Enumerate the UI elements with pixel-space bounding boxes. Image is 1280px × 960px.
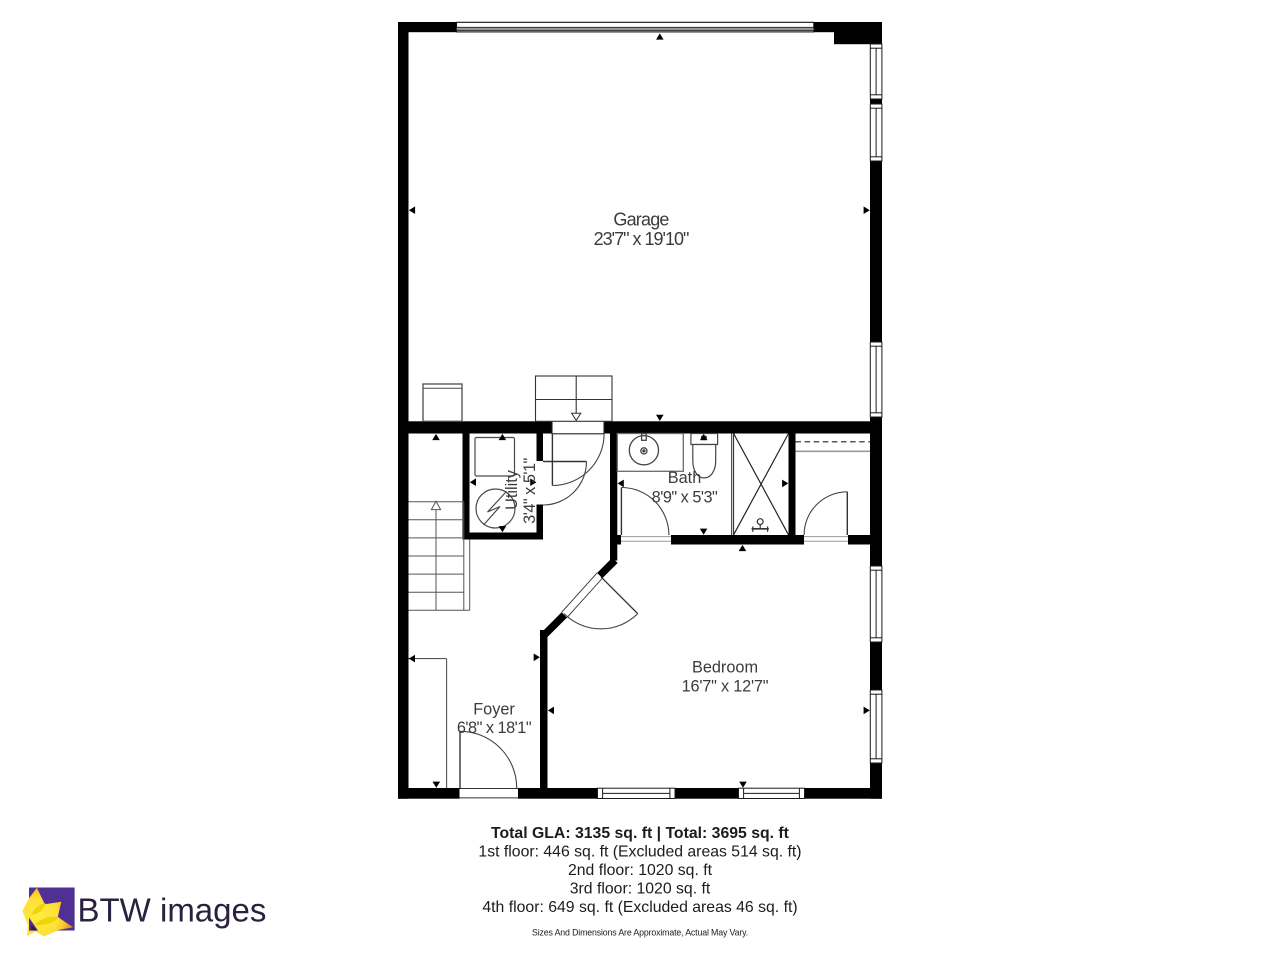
svg-text:3'4" x 5'1": 3'4" x 5'1" xyxy=(521,457,539,523)
svg-text:Bath: Bath xyxy=(668,469,702,487)
svg-text:8'9" x 5'3": 8'9" x 5'3" xyxy=(652,488,718,506)
svg-text:1st floor: 446 sq. ft (Exclude: 1st floor: 446 sq. ft (Excluded areas 51… xyxy=(478,843,801,860)
svg-text:23'7" x 19'10": 23'7" x 19'10" xyxy=(594,229,689,249)
svg-text:Utility: Utility xyxy=(503,469,521,510)
svg-text:3rd floor: 1020 sq. ft: 3rd floor: 1020 sq. ft xyxy=(570,881,711,898)
svg-text:Foyer: Foyer xyxy=(473,701,515,719)
svg-text:BTW images: BTW images xyxy=(78,892,267,929)
svg-text:6'8" x 18'1": 6'8" x 18'1" xyxy=(457,719,532,737)
svg-text:Bedroom: Bedroom xyxy=(692,659,758,677)
svg-text:Garage: Garage xyxy=(613,210,669,230)
svg-text:Sizes And Dimensions Are Appro: Sizes And Dimensions Are Approximate, Ac… xyxy=(532,927,748,937)
svg-text:2nd floor: 1020 sq. ft: 2nd floor: 1020 sq. ft xyxy=(568,862,713,879)
svg-text:Total GLA: 3135 sq. ft | Total: Total GLA: 3135 sq. ft | Total: 3695 sq.… xyxy=(491,825,790,842)
svg-text:4th floor: 649 sq. ft (Exclude: 4th floor: 649 sq. ft (Excluded areas 46… xyxy=(482,899,797,916)
svg-text:16'7" x 12'7": 16'7" x 12'7" xyxy=(682,677,769,695)
